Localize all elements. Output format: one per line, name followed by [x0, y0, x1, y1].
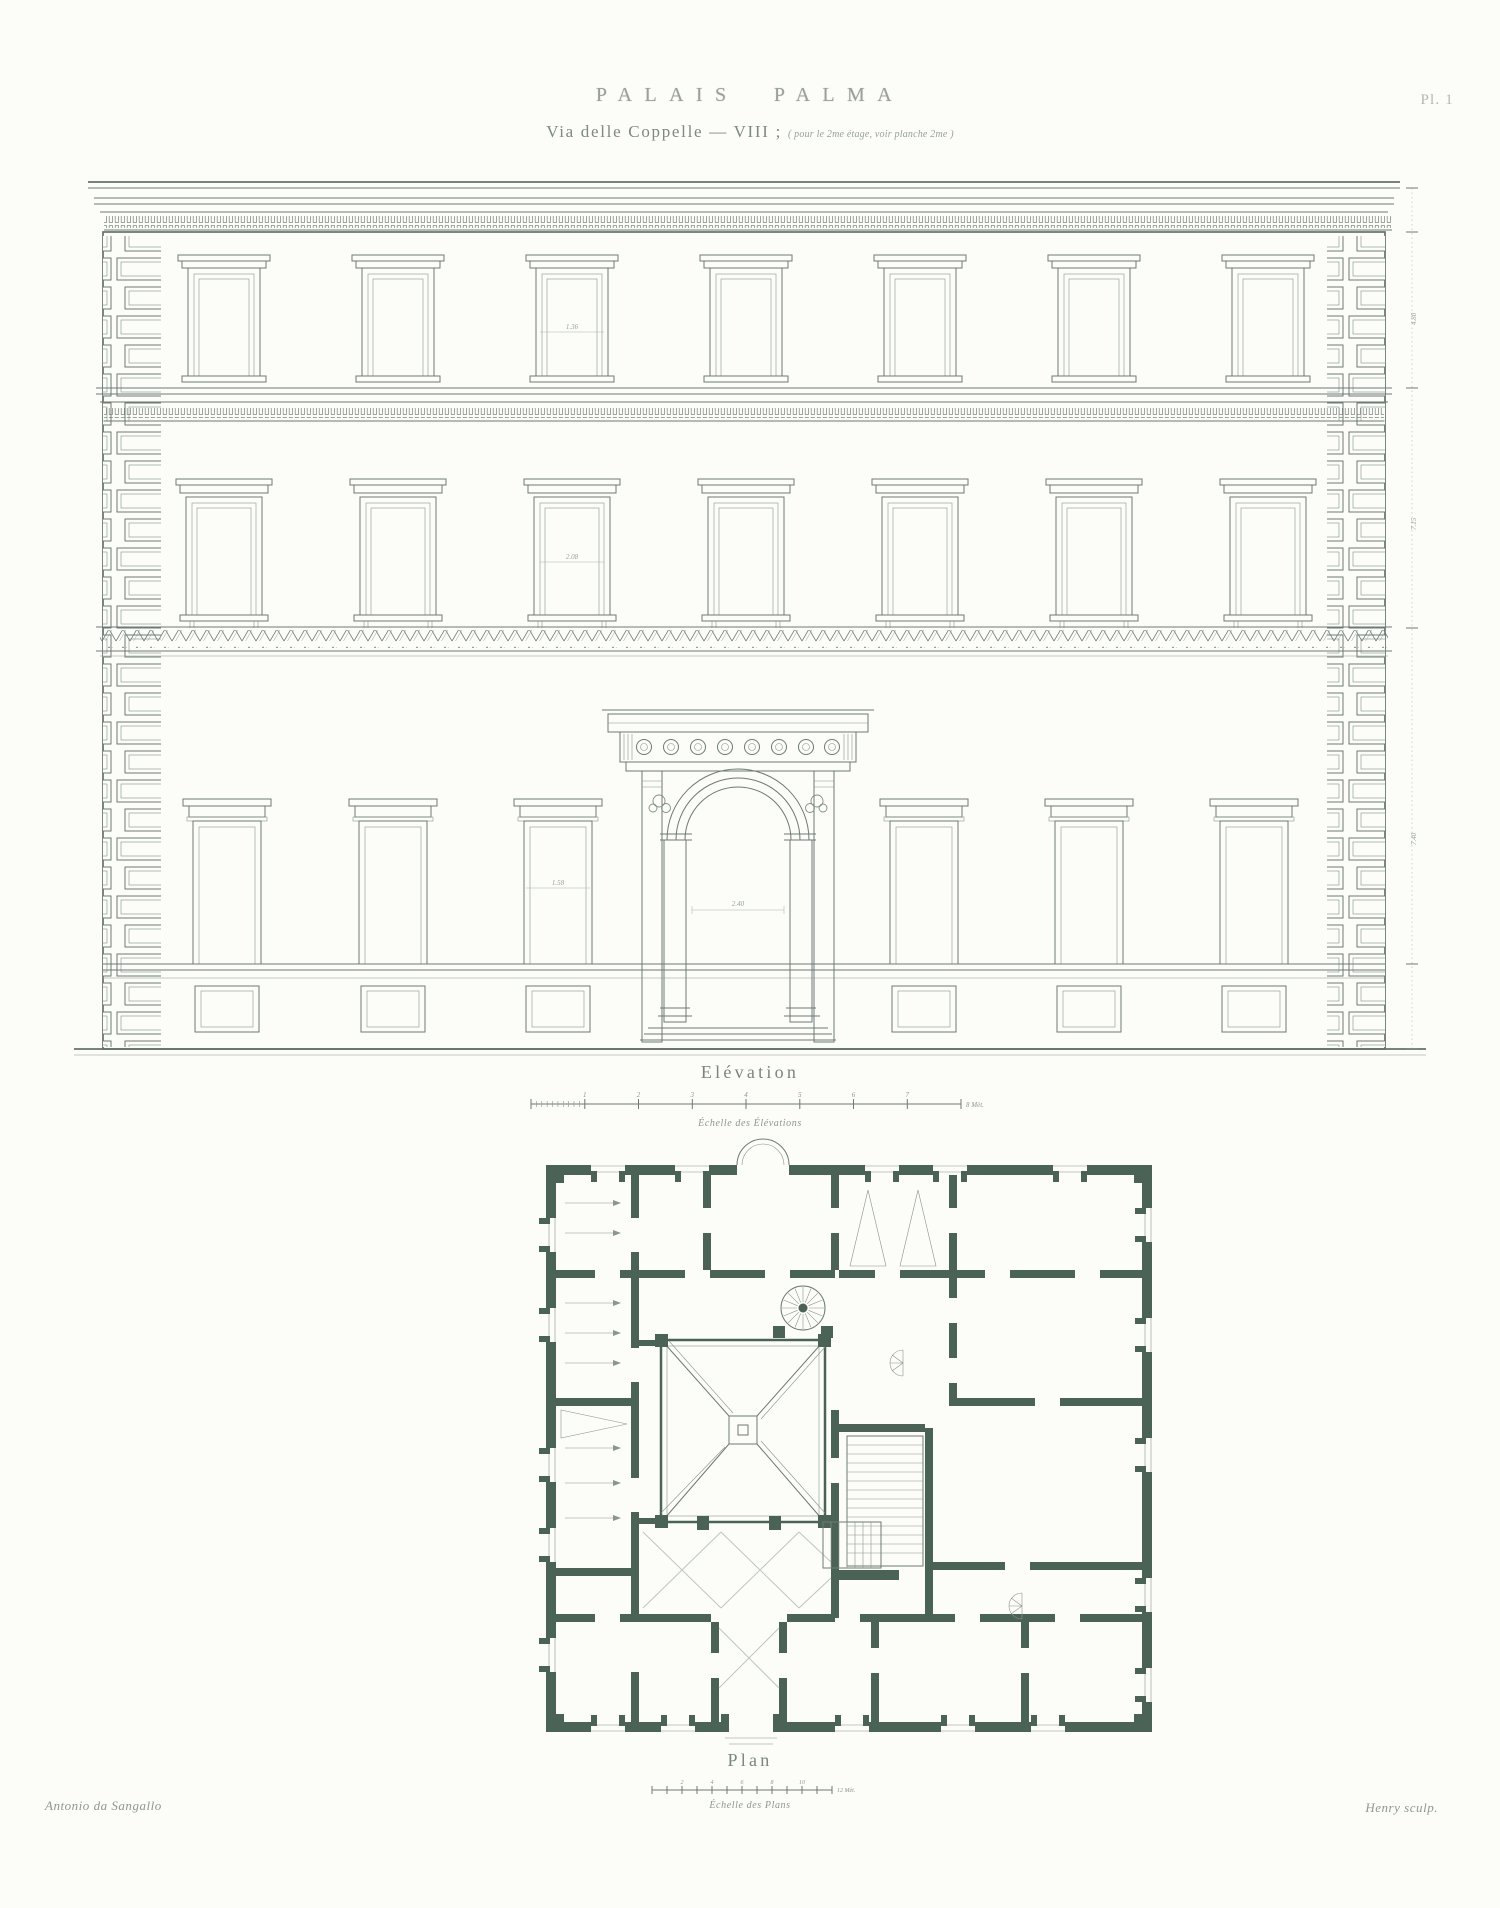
- courtyard: [655, 1326, 833, 1530]
- engraved-plate-sheet: PALAIS PALMA Via delle Coppelle — VIII ;…: [0, 0, 1500, 1908]
- window: [526, 986, 590, 1032]
- window: [195, 986, 259, 1032]
- scale-end-label: 8 Mèt.: [966, 1101, 984, 1109]
- dim-third-window: 1.36: [566, 323, 579, 331]
- window: [178, 255, 270, 382]
- window: [361, 986, 425, 1032]
- scale-tick: 6: [741, 1780, 744, 1786]
- window: [874, 255, 966, 382]
- second-floor-windows: [176, 479, 1316, 628]
- third-floor-windows: [178, 255, 1314, 382]
- elevation-scale-bar: 1 2 3 4 5 6 7 8 Mèt.: [525, 1090, 1025, 1120]
- window: [892, 986, 956, 1032]
- window: [176, 479, 272, 628]
- entrance-portal: 2.40: [602, 710, 874, 1042]
- scale-tick: 10: [799, 1780, 805, 1786]
- subtitle-address: Via delle Coppelle — VIII ;: [546, 122, 782, 141]
- window: [350, 479, 446, 628]
- direction-arrows: [565, 1200, 621, 1521]
- scale-tick: 7: [906, 1091, 910, 1099]
- paving-diagonals: [643, 1532, 831, 1688]
- scale-tick: 5: [798, 1091, 802, 1099]
- scale-tick: 2: [637, 1091, 641, 1099]
- spandrel-foliage: [649, 795, 827, 813]
- crowning-cornice: [88, 182, 1400, 230]
- plan-drawing: [535, 1133, 1175, 1748]
- window: [1048, 255, 1140, 382]
- elevation-label: Elévation: [0, 1062, 1500, 1083]
- credit-engraver: Henry sculp.: [1365, 1800, 1438, 1816]
- window: [1210, 799, 1298, 964]
- scale-tick: 4: [744, 1091, 748, 1099]
- window: [1046, 479, 1142, 628]
- window: [698, 479, 794, 628]
- plan-scale-caption: Échelle des Plans: [0, 1800, 1500, 1811]
- dim-portal: 2.40: [732, 900, 745, 908]
- scale-tick: 6: [852, 1091, 856, 1099]
- window: [872, 479, 968, 628]
- plate-title: PALAIS PALMA: [0, 84, 1500, 107]
- window: [526, 255, 618, 382]
- window: [700, 255, 792, 382]
- window: [352, 255, 444, 382]
- window: [1045, 799, 1133, 964]
- plan-scale-bar: 2 4 6 8 10 12 Mèt.: [648, 1776, 888, 1802]
- dim-side-0: 4.80: [1410, 312, 1418, 325]
- window: [880, 799, 968, 964]
- portal-frieze-rosettes: [624, 734, 852, 760]
- triangle-features: [850, 1190, 936, 1266]
- dim-second-window: 2.08: [566, 553, 579, 561]
- spiral-staircase: [781, 1286, 825, 1330]
- scale-tick: 2: [681, 1780, 684, 1786]
- elevation-drawing: 1.36 2.08: [60, 140, 1440, 1080]
- scale-tick: 1: [583, 1091, 587, 1099]
- credit-architect: Antonio da Sangallo: [45, 1798, 162, 1814]
- plan-entrance: [721, 1714, 781, 1744]
- scale-tick: 8: [771, 1780, 774, 1786]
- window: [1057, 986, 1121, 1032]
- scale-tick: 3: [690, 1091, 695, 1099]
- ramp-wedge: [561, 1410, 627, 1438]
- dim-side-2: 7.40: [1410, 832, 1418, 845]
- window: [1222, 255, 1314, 382]
- guilloche-band: [96, 627, 1392, 656]
- dimension-chain: 4.80 7.15 7.40: [1406, 188, 1418, 1049]
- plan-label: Plan: [0, 1750, 1500, 1771]
- window: [349, 799, 437, 964]
- plan-interior-walls: [556, 1175, 1142, 1722]
- bow-projection: [737, 1139, 789, 1177]
- scale-end-label: 12 Mèt.: [837, 1788, 855, 1794]
- window: [183, 799, 271, 964]
- plate-number: Pl. 1: [1420, 92, 1454, 109]
- plate-subtitle: Via delle Coppelle — VIII ; ( pour le 2m…: [0, 122, 1500, 142]
- dim-ground-window: 1.58: [552, 879, 565, 887]
- string-course: [96, 388, 1392, 421]
- scale-tick: 4: [711, 1779, 714, 1786]
- elevation-scale-caption: Échelle des Élévations: [0, 1118, 1500, 1129]
- window: [1222, 986, 1286, 1032]
- dim-side-1: 7.15: [1410, 517, 1418, 530]
- subtitle-note: ( pour le 2me étage, voir planche 2me ): [788, 129, 954, 140]
- window: [1220, 479, 1316, 628]
